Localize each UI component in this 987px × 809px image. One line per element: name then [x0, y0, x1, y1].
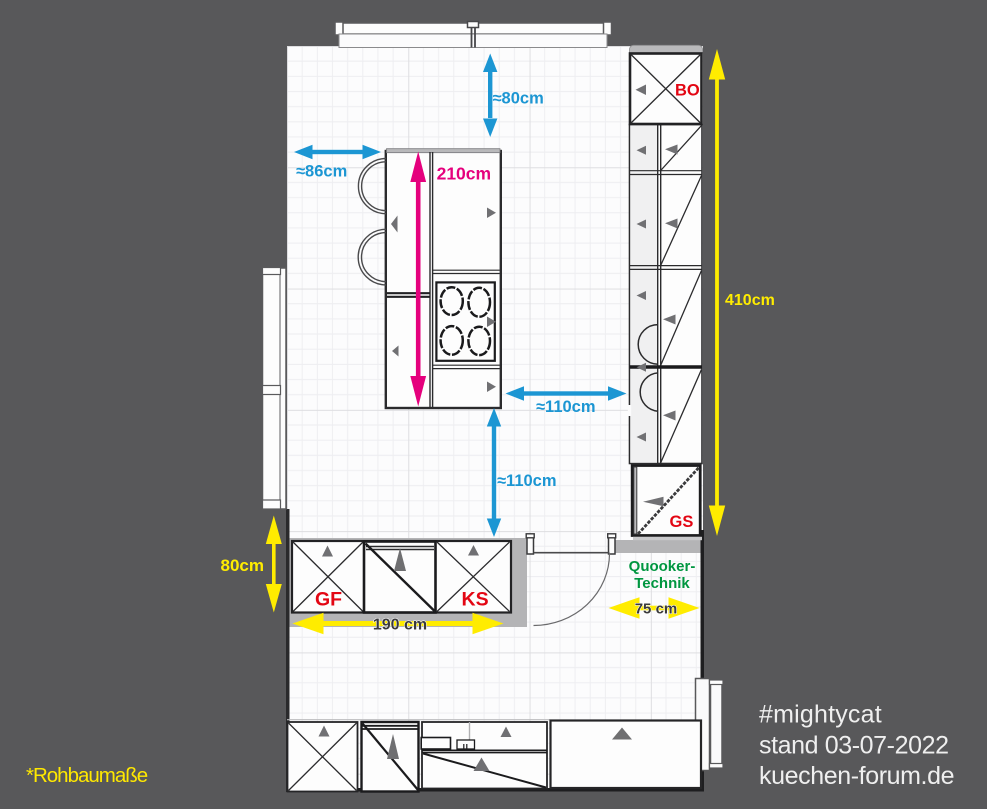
svg-text:KS: KS	[462, 589, 489, 611]
svg-text:#mightycat: #mightycat	[759, 701, 882, 729]
svg-text:*Rohbaumaße: *Rohbaumaße	[26, 764, 148, 787]
svg-text:≈80cm: ≈80cm	[493, 90, 544, 108]
svg-text:≈110cm: ≈110cm	[536, 398, 596, 416]
svg-text:≈86cm: ≈86cm	[296, 163, 347, 181]
svg-text:≈110cm: ≈110cm	[497, 472, 557, 490]
svg-text:Technik: Technik	[634, 575, 690, 592]
svg-text:Quooker-: Quooker-	[629, 558, 696, 575]
svg-text:80cm: 80cm	[221, 556, 264, 575]
svg-text:kuechen-forum.de: kuechen-forum.de	[759, 762, 954, 790]
svg-text:stand 03-07-2022: stand 03-07-2022	[759, 732, 949, 760]
svg-text:190 cm: 190 cm	[373, 617, 427, 634]
svg-text:BO: BO	[675, 82, 700, 100]
svg-text:410cm: 410cm	[725, 292, 775, 309]
svg-text:GF: GF	[315, 589, 342, 611]
svg-text:210cm: 210cm	[437, 164, 492, 184]
svg-text:75 cm: 75 cm	[635, 601, 678, 618]
svg-text:GS: GS	[670, 513, 694, 531]
